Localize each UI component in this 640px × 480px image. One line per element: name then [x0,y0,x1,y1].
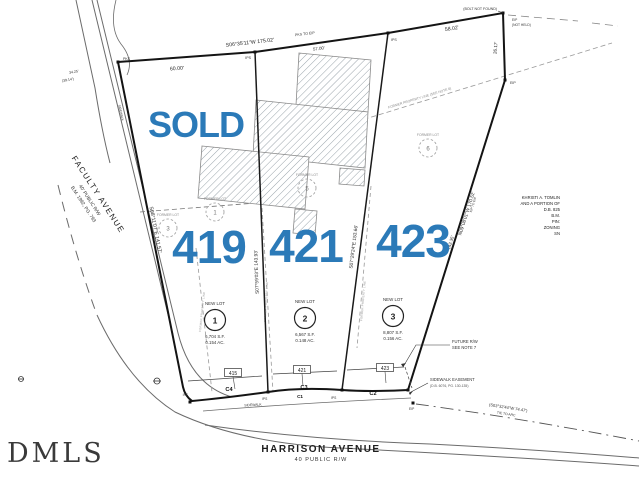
new-lot-1: NEW LOT 1 6,704 S.F. 0.154 AC. [205,301,226,345]
curve-label-c2: C2 [369,391,376,397]
adjoiner-line: B.M. [551,213,560,218]
dmls-watermark: DMLS [7,438,105,469]
eip-not-held-note: (NOT HELD) [512,23,531,27]
road-edge [92,0,173,335]
plat-map-image: FORMER PROPERTY LINE (SEE NOTE 6) FORMER… [0,0,640,480]
corner-dim-b: (39.14') [62,77,75,83]
lot-area-sf: 6,567 S.F. [295,332,315,337]
top-bearing: S06°35'11"W 175.02' [225,37,274,48]
adjoiner-line: D.B. 825 [544,207,561,212]
former-lot-label: FORMER LOT [204,197,226,201]
sidewalk-easement-text-1: SIDEWALK EASEMENT [430,377,475,382]
top-bearing-sub: PKS TO EIP [295,31,316,37]
lot-area-ac: 0.156 AC. [383,336,402,341]
new-lot-3: NEW LOT 3 8,807 S.F. 0.156 AC. [383,297,404,341]
former-lot-number: 3 [166,227,170,233]
sold-overlay-label: SOLD [148,104,244,145]
harrison-avenue-label: HARRISON AVENUE 40 PUBLIC R/W [261,444,380,463]
future-rw-note: FUTURE R/W SEE NOTE 7 [401,339,478,367]
lot-area-ac: 0.154 AC. [205,340,224,345]
bearing-line-419-421: S07°59'03"E 143.93' [253,250,261,294]
lot-area-sf: 8,807 S.F. [383,330,403,335]
new-lot-number: 3 [391,312,396,322]
new-lot-label: NEW LOT [205,301,225,306]
sidewalk-label: SIDEWALK [117,104,125,122]
dim-26: 26.17' [492,41,498,54]
eip-label: EIP [409,407,415,411]
eip-not-held-label: EIP [512,18,518,22]
former-lot-label: FORMER LOT [157,213,179,217]
address-box-text: 423 [381,366,390,372]
former-lot-label: FORMER LOT [417,133,439,137]
lot-area-sf: 6,704 S.F. [205,334,225,339]
address-box-423: 423 [377,364,394,384]
former-property-line-label: FORMER PROPERTY LINE [359,281,367,322]
future-rw-text-1: FUTURE R/W [452,339,478,344]
new-lot-label: NEW LOT [383,297,403,302]
sold-lot-line [140,203,256,212]
former-line [357,186,371,348]
bolt-not-found-note: (BOLT NOT FOUND) [463,7,497,11]
address-box-415: 415 [225,369,242,390]
adjoiner-line: SN [554,231,560,236]
address-box-text: 415 [229,371,238,377]
dim-58: 58.02' [444,25,459,33]
ips-label: IPS [262,397,268,401]
ips-label: IPS [245,56,251,60]
street-rw: 40 PUBLIC R/W [295,457,348,463]
former-lot-6: FORMER LOT 6 [417,133,439,157]
former-lot-1: FORMER LOT 1 [204,197,226,221]
adjoiner-line: PIN: [552,219,560,224]
street-name: HARRISON AVENUE [261,444,380,455]
faculty-avenue-label: FACULTY AVENUE 40' PUBLIC R/W B.M. 1992,… [56,154,127,244]
future-rw-seg [347,367,404,370]
driveway-flare [113,0,129,75]
ips-label: IPS [183,393,189,397]
adjoiner-line: AND A PORTION OF [521,201,561,206]
new-lot-number: 1 [213,316,218,326]
curve-label-c3: C3 [300,385,307,391]
curve-label-c4: C4 [225,387,233,393]
address-box-421: 421 [294,366,311,387]
eip-label: EIP [510,81,516,85]
road-edge [76,0,110,163]
address-421-label: 421 [269,220,343,272]
adjoiner-line: KHRISTI A. TOMLIN [522,195,560,200]
future-rw-text-2: SEE NOTE 7 [452,345,477,350]
ips-label: IPS [391,38,397,42]
corner-dim-a: 34.25' [69,69,80,75]
former-lot-number: 1 [213,211,217,217]
address-423-label: 423 [376,215,450,267]
former-lot-number: 5 [305,187,309,193]
ips-label: IPS [331,396,337,400]
address-419-label: 419 [172,221,246,273]
survey-marker-icon [18,377,161,385]
former-lot-label: FORMER LOT [296,173,318,177]
former-property-line-note: FORMER PROPERTY LINE (SEE NOTE 6) [388,87,452,110]
lot-area-ac: 0.148 AC. [295,338,314,343]
sidewalk-outer-edge [203,398,411,411]
sidewalk-easement-note: SIDEWALK EASEMENT (D.B. 6076, PG. 130-13… [409,377,475,395]
new-lot-label: NEW LOT [295,299,315,304]
dim-57: 57.00' [313,45,326,51]
adjoiner-line: ZONING [544,225,560,230]
dim-60: 60.00' [170,66,184,73]
house-block [296,53,371,112]
pks-label: PKS [123,57,131,61]
sidewalk-easement-text-2: (D.B. 6076, PG. 130-135) [430,384,468,388]
house-block [339,168,365,186]
new-lot-2: NEW LOT 2 6,567 S.F. 0.148 AC. [295,299,316,343]
adjoiner-owner-info: KHRISTI A. TOMLIN AND A PORTION OF D.B. … [521,195,561,236]
curve-label-c1: C1 [297,394,303,399]
address-box-text: 421 [298,368,307,374]
plat-drawing: FORMER PROPERTY LINE (SEE NOTE 6) FORMER… [0,0,640,480]
former-lot-number: 6 [426,147,430,153]
new-lot-number: 2 [303,314,308,324]
